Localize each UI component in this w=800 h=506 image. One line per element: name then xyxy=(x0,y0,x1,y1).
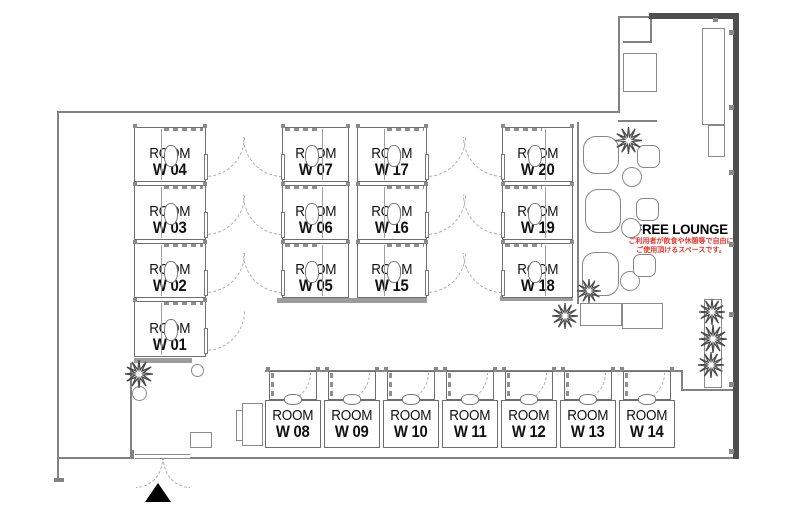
wall-post xyxy=(203,124,207,128)
wall-post xyxy=(346,182,350,186)
room-number: W 11 xyxy=(454,423,487,441)
lobby-wall xyxy=(618,16,652,18)
wall-post xyxy=(729,382,734,387)
room-w08: ROOMW 08 xyxy=(265,400,321,448)
lobby-wall xyxy=(650,16,652,43)
glass-partition-dashes xyxy=(285,244,319,247)
wall-post xyxy=(729,30,734,35)
plant-icon xyxy=(125,360,153,388)
room-number: W 12 xyxy=(512,423,546,441)
door-leaf xyxy=(204,154,208,180)
chair xyxy=(461,394,479,405)
chair xyxy=(528,203,542,225)
room-w12: ROOMW 12 xyxy=(501,400,557,448)
free-lounge-note-line1: ご利用者が飲食や休憩等で自由に xyxy=(629,238,734,245)
chair xyxy=(387,145,401,167)
wall-post xyxy=(424,124,428,128)
plant-icon xyxy=(577,279,601,303)
door-leaf xyxy=(501,212,505,238)
chair xyxy=(520,394,538,405)
room-divider xyxy=(322,129,323,180)
room-label: ROOM xyxy=(509,408,550,423)
glass-partition-dashes xyxy=(164,186,203,189)
wall-post xyxy=(729,449,734,454)
glass-partition-dashes xyxy=(566,373,569,397)
wall-post xyxy=(346,240,350,244)
counter xyxy=(708,125,725,157)
plant-icon xyxy=(615,127,642,154)
room-w10: ROOMW 10 xyxy=(383,400,439,448)
chair xyxy=(305,261,319,283)
room-number: W 10 xyxy=(394,423,428,441)
chair xyxy=(387,203,401,225)
door-leaf xyxy=(281,270,285,296)
wall-post xyxy=(356,182,360,186)
door-leaf xyxy=(281,154,285,180)
bottom-wall xyxy=(57,457,134,459)
room-w13: ROOMW 13 xyxy=(560,400,616,448)
plant-icon xyxy=(698,352,724,378)
chair xyxy=(305,145,319,167)
door-swing-arc xyxy=(463,253,503,293)
glass-partition-dashes xyxy=(164,244,203,247)
locker-side xyxy=(236,410,243,441)
lounge-table xyxy=(580,303,622,326)
plant-pot xyxy=(132,386,147,401)
door-swing-arc xyxy=(426,137,466,177)
glass-partition-dashes xyxy=(448,373,451,397)
lounge-left-wall xyxy=(577,122,579,304)
lounge-chair xyxy=(636,198,659,221)
lobby-wall xyxy=(618,16,620,112)
chair xyxy=(343,394,361,405)
free-lounge-title: FREE LOUNGE xyxy=(625,221,737,237)
wall-post xyxy=(133,240,137,244)
wall-post xyxy=(729,105,734,110)
door-leaf xyxy=(425,154,429,180)
wall-post xyxy=(203,182,207,186)
wall-post xyxy=(356,124,360,128)
wall-post xyxy=(133,182,137,186)
door-leaf xyxy=(425,270,429,296)
room-divider xyxy=(384,129,385,180)
glass-partition-dashes xyxy=(507,373,510,397)
door-leaf xyxy=(425,212,429,238)
door-swing-arc xyxy=(243,253,283,293)
room-label: ROOM xyxy=(627,408,668,423)
door-leaf xyxy=(204,328,208,354)
room-block-base xyxy=(277,298,427,303)
glass-partition-dashes xyxy=(164,128,203,131)
room-divider xyxy=(161,245,162,296)
wall-post xyxy=(356,240,360,244)
wall-cap xyxy=(54,478,64,482)
room-divider xyxy=(322,245,323,296)
chair xyxy=(528,145,542,167)
glass-partition-dashes xyxy=(285,186,319,189)
room-divider xyxy=(384,187,385,238)
top-wall xyxy=(57,111,620,113)
chair xyxy=(402,394,420,405)
wall-post xyxy=(729,170,734,175)
exterior-wall xyxy=(649,13,739,19)
room-w09: ROOMW 09 xyxy=(324,400,380,448)
wall-post xyxy=(570,240,574,244)
chair xyxy=(387,261,401,283)
door-swing-arc xyxy=(205,311,245,351)
entrance-jamb xyxy=(132,450,134,459)
door-swing-arc xyxy=(205,137,245,177)
plant-icon xyxy=(552,303,578,329)
step-wall xyxy=(681,389,734,391)
entrance-cabinet xyxy=(190,432,212,448)
door-swing-arc xyxy=(463,137,503,177)
wall-post xyxy=(133,298,137,302)
lounge-top-wall xyxy=(618,120,657,122)
cabinet xyxy=(623,53,657,92)
room-divider xyxy=(384,245,385,296)
room-w11: ROOMW 11 xyxy=(442,400,498,448)
door-swing-arc xyxy=(243,137,283,177)
door-swing-arc xyxy=(463,195,503,235)
chair xyxy=(638,394,656,405)
room-divider xyxy=(161,303,162,355)
door-swing-arc xyxy=(205,195,245,235)
wall-post xyxy=(729,312,734,317)
lobby-wall xyxy=(623,41,652,43)
door-swing-arc xyxy=(426,195,466,235)
wall-post xyxy=(133,124,137,128)
counter xyxy=(702,28,725,125)
free-lounge-note: ご利用者が飲食や休憩等で自由に ご使用頂けるスペースです。 xyxy=(622,238,740,255)
glass-partition-dashes xyxy=(505,128,542,131)
room-w14: ROOMW 14 xyxy=(619,400,675,448)
wall-post xyxy=(203,298,207,302)
lounge-round-table xyxy=(621,218,641,238)
door-leaf xyxy=(204,212,208,238)
door-swing-arc xyxy=(205,253,245,293)
glass-partition-dashes xyxy=(387,244,424,247)
exterior-wall xyxy=(733,13,739,459)
chair xyxy=(164,319,178,341)
wall-post xyxy=(203,240,207,244)
wall-post xyxy=(424,182,428,186)
room-number: W 09 xyxy=(335,423,369,441)
room-label: ROOM xyxy=(273,408,314,423)
room-divider xyxy=(545,187,546,238)
room-divider xyxy=(545,245,546,296)
room-number: W 13 xyxy=(571,423,605,441)
room-label: ROOM xyxy=(332,408,373,423)
room-divider xyxy=(161,187,162,238)
chair xyxy=(305,203,319,225)
room-number: W 14 xyxy=(630,423,664,441)
wall-post xyxy=(570,124,574,128)
room-divider xyxy=(322,187,323,238)
bottom-wall xyxy=(190,457,738,459)
room-label: ROOM xyxy=(391,408,432,423)
plant-icon xyxy=(699,299,725,325)
glass-partition-dashes xyxy=(389,373,392,397)
step-wall xyxy=(681,370,683,391)
door-leaf xyxy=(281,212,285,238)
room-divider xyxy=(545,129,546,180)
plant-icon xyxy=(699,325,727,353)
door-leaf xyxy=(501,154,505,180)
chair xyxy=(164,261,178,283)
glass-partition-dashes xyxy=(387,186,424,189)
wall-post xyxy=(729,242,734,247)
lounge-chair xyxy=(633,254,656,277)
glass-partition-dashes xyxy=(505,186,542,189)
room-divider xyxy=(161,129,162,180)
plant-pot xyxy=(191,364,204,377)
glass-partition-dashes xyxy=(625,373,628,397)
door-swing-arc xyxy=(243,195,283,235)
room-number: W 08 xyxy=(276,423,310,441)
glass-partition-dashes xyxy=(164,302,203,305)
glass-partition-dashes xyxy=(330,373,333,397)
chair xyxy=(284,394,302,405)
chair xyxy=(164,145,178,167)
door-leaf xyxy=(204,270,208,296)
lounge-round-table xyxy=(622,167,642,187)
glass-partition-dashes xyxy=(285,128,319,131)
glass-partition-dashes xyxy=(505,244,542,247)
entrance-marker triangle-up-icon xyxy=(145,483,171,502)
lounge-table xyxy=(622,303,663,329)
sofa xyxy=(585,189,621,233)
wall-post xyxy=(713,18,718,22)
door-swing-arc xyxy=(426,253,466,293)
wall-post xyxy=(346,124,350,128)
room-label: ROOM xyxy=(450,408,491,423)
locker xyxy=(242,403,263,446)
chair xyxy=(579,394,597,405)
free-lounge-note-line2: ご使用頂けるスペースです。 xyxy=(636,247,725,254)
left-wall xyxy=(57,111,59,480)
glass-partition-dashes xyxy=(387,128,424,131)
chair xyxy=(528,261,542,283)
door-leaf xyxy=(501,270,505,296)
floor-plan: FREE LOUNGE ご利用者が飲食や休憩等で自由に ご使用頂けるスペースです… xyxy=(0,0,800,506)
room-label: ROOM xyxy=(568,408,609,423)
chair xyxy=(164,203,178,225)
wall-post xyxy=(424,240,428,244)
wall-post xyxy=(570,182,574,186)
glass-partition-dashes xyxy=(271,373,274,397)
